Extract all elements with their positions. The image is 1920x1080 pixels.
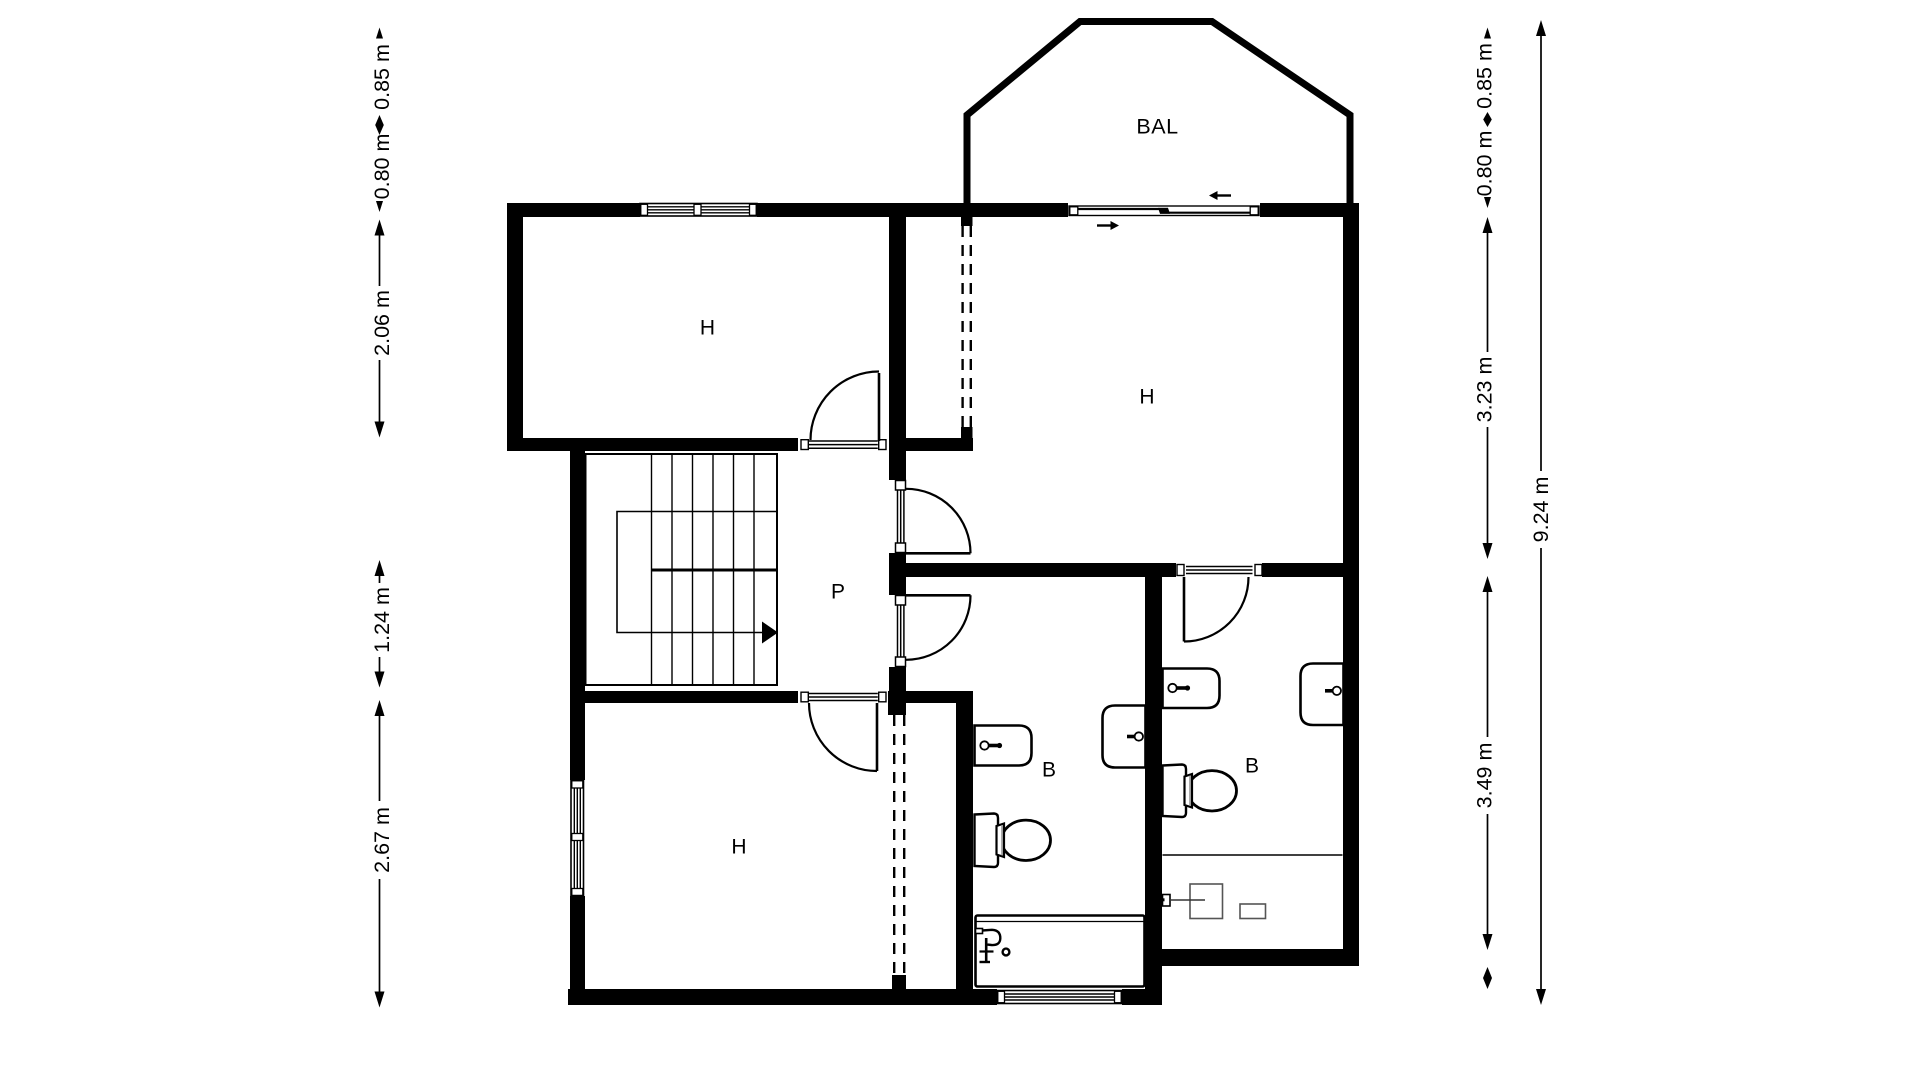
svg-text:0.85 m: 0.85 m [1473, 43, 1497, 109]
svg-text:B: B [1245, 755, 1259, 778]
svg-text:H: H [731, 836, 746, 859]
svg-text:3.49 m: 3.49 m [1473, 743, 1497, 809]
svg-text:B: B [1042, 759, 1056, 782]
svg-text:3.23 m: 3.23 m [1473, 357, 1497, 423]
svg-text:2.67 m: 2.67 m [370, 807, 394, 873]
svg-text:1.24 m: 1.24 m [370, 587, 394, 653]
svg-text:0.85 m: 0.85 m [370, 44, 394, 110]
svg-text:H: H [700, 317, 715, 340]
svg-text:P: P [831, 581, 845, 604]
svg-text:0.80 m: 0.80 m [1473, 131, 1497, 197]
svg-text:2.06 m: 2.06 m [370, 290, 394, 356]
svg-text:0.80 m: 0.80 m [370, 134, 394, 200]
svg-text:9.24 m: 9.24 m [1529, 477, 1553, 543]
svg-text:H: H [1139, 386, 1154, 409]
svg-text:BAL: BAL [1136, 115, 1178, 139]
